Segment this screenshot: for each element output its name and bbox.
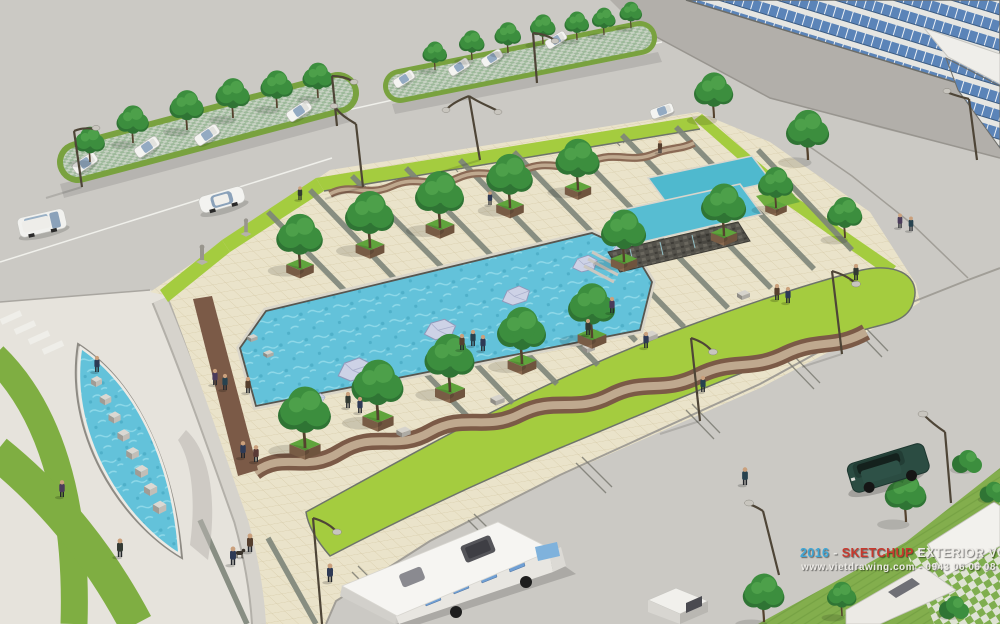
rendering-screenshot: 2016 - SKETCHUP EXTERIOR VOL.16 www.viet… bbox=[0, 0, 1000, 624]
rendering-canvas bbox=[0, 0, 1000, 624]
